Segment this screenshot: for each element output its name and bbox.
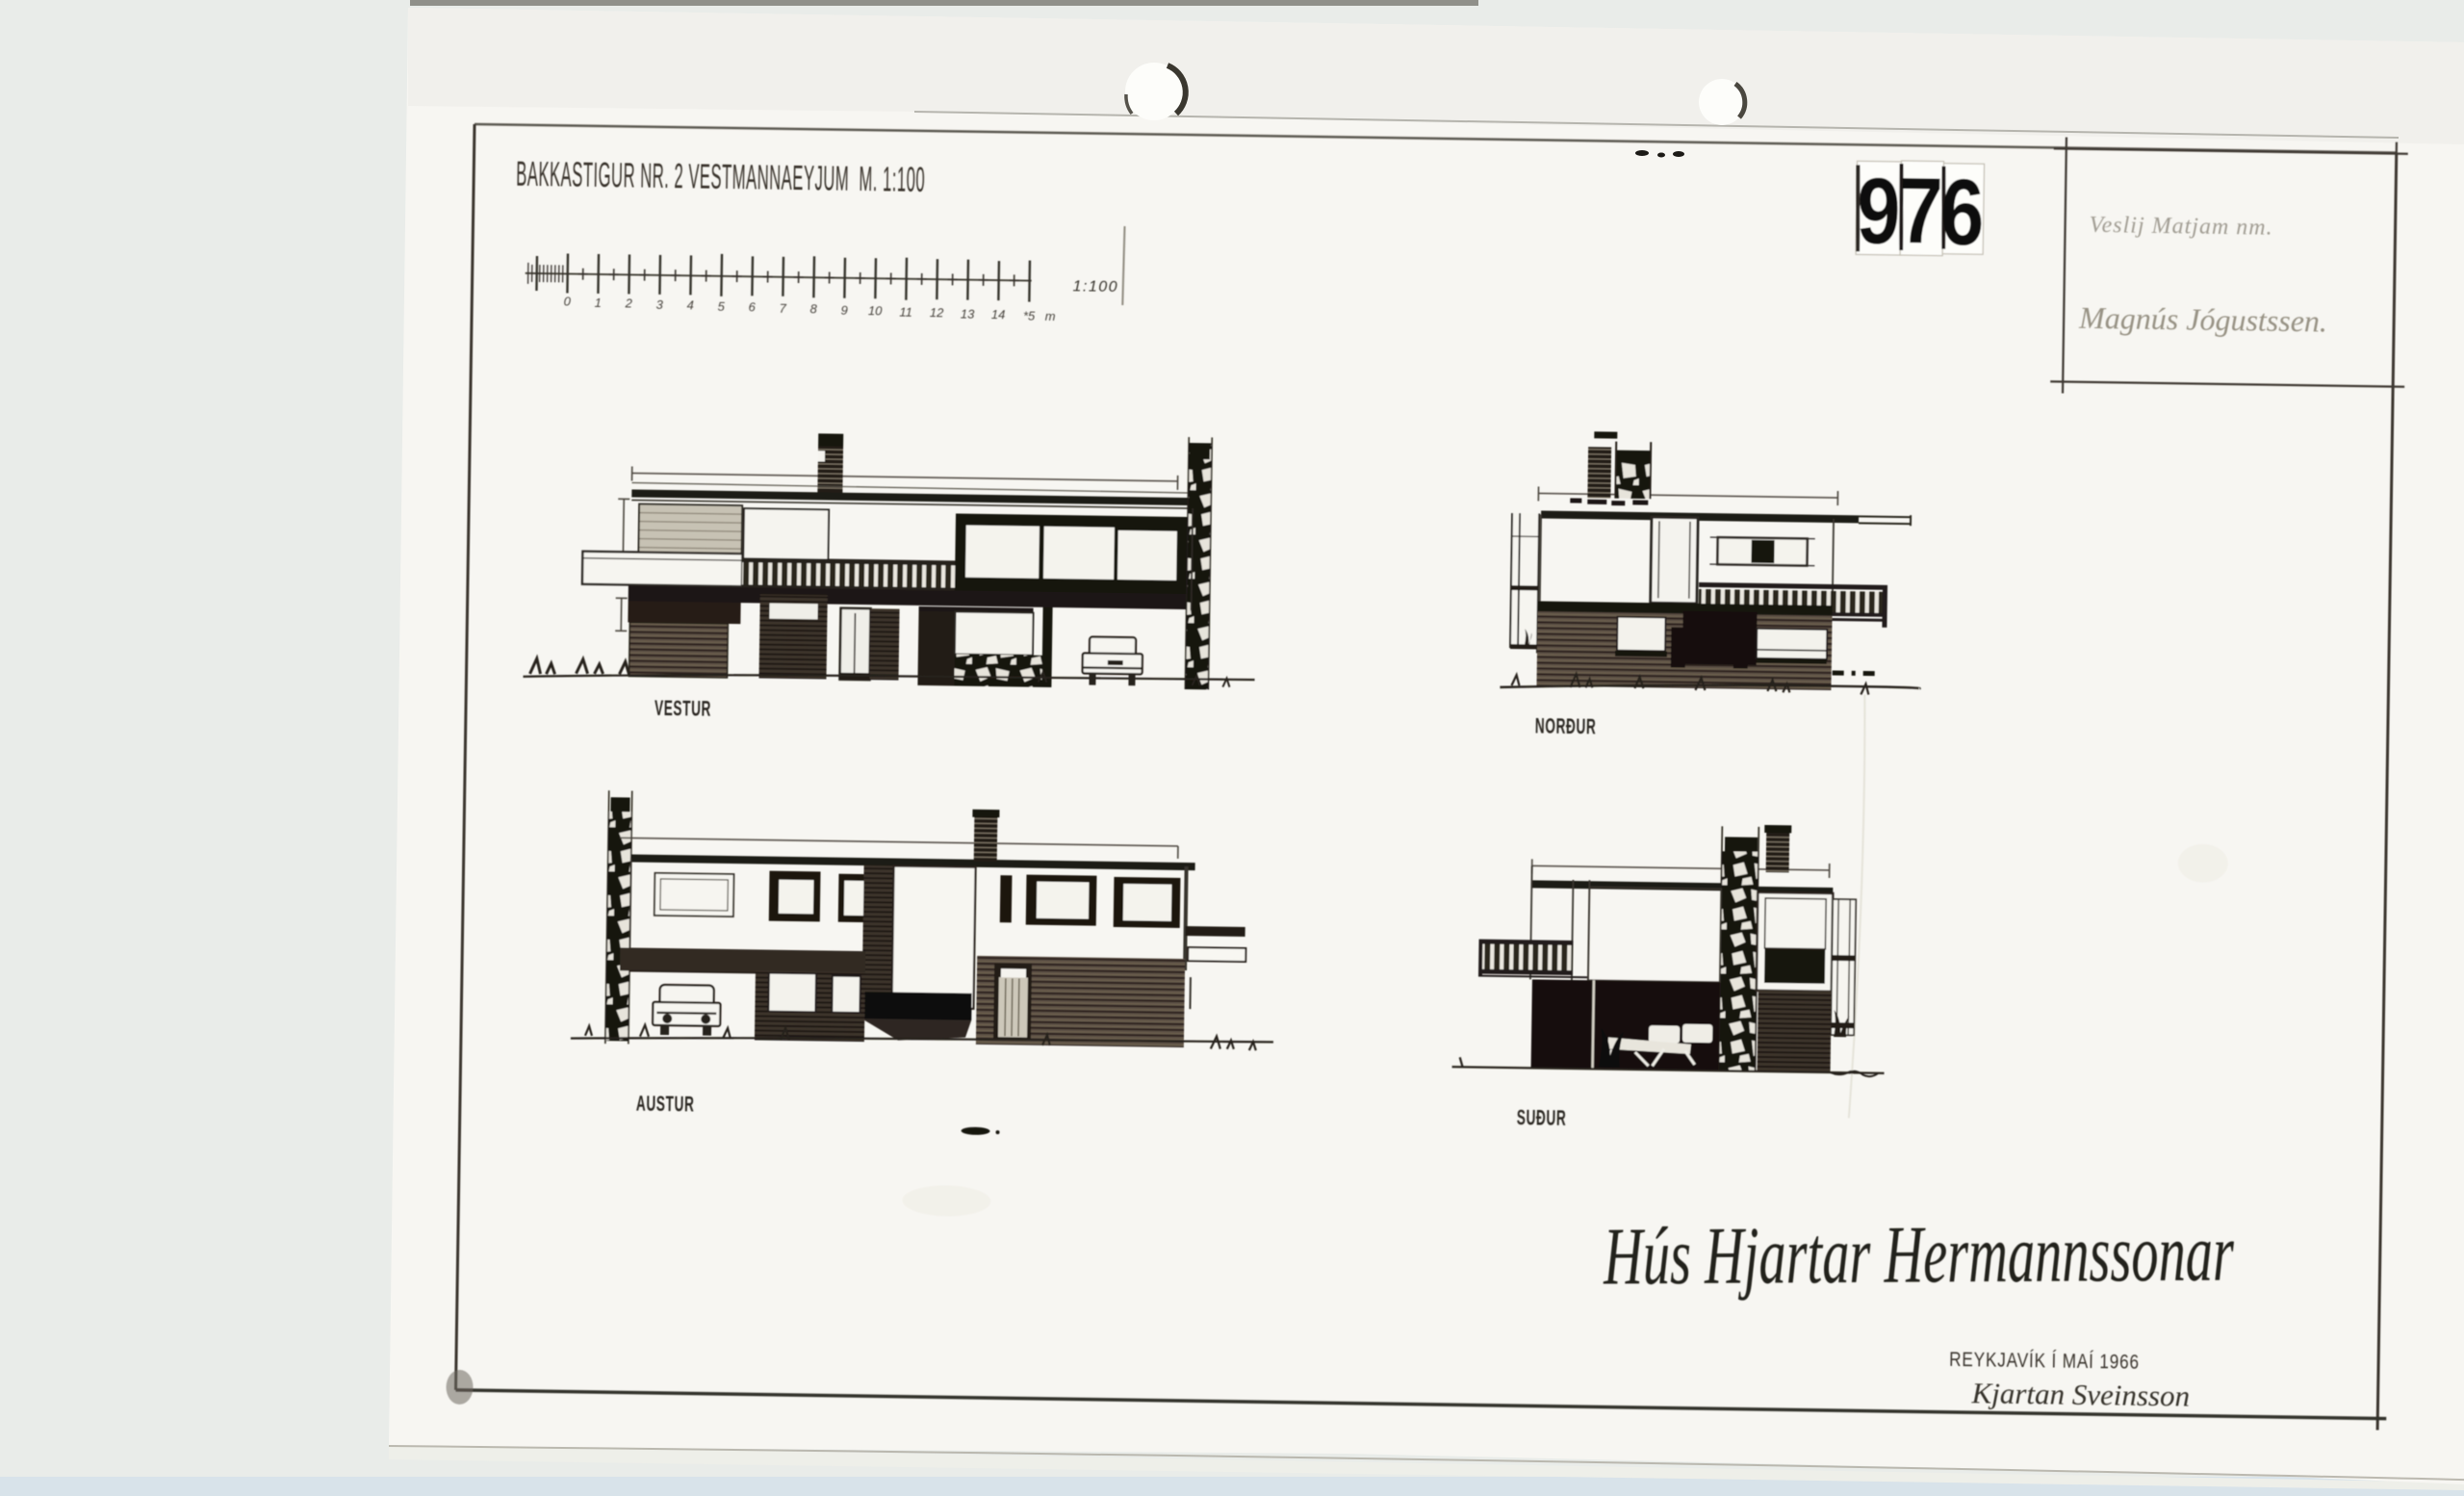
svg-text:13: 13	[961, 307, 975, 322]
svg-text:3: 3	[656, 297, 664, 312]
svg-text:NORÐUR: NORÐUR	[1535, 713, 1597, 738]
svg-text:Hús Hjartar Hermannssonar: Hús Hjartar Hermannssonar	[1603, 1207, 2235, 1302]
svg-text:6: 6	[748, 299, 756, 314]
svg-text:4: 4	[687, 297, 694, 312]
svg-text:10: 10	[868, 303, 883, 318]
svg-text:*5: *5	[1023, 308, 1036, 322]
svg-text:8: 8	[809, 301, 817, 316]
svg-text:1:100: 1:100	[1072, 278, 1118, 296]
svg-text:9: 9	[840, 303, 847, 318]
svg-text:m: m	[1045, 309, 1056, 323]
svg-text:14: 14	[991, 307, 1006, 322]
svg-text:REYKJAVÍK Í MAÍ 1966: REYKJAVÍK Í MAÍ 1966	[1949, 1349, 2140, 1374]
svg-text:7: 7	[1898, 158, 1943, 263]
svg-text:Magnús Jógustssen.: Magnús Jógustssen.	[2078, 300, 2327, 339]
svg-text:5: 5	[717, 299, 725, 314]
svg-text:7: 7	[779, 301, 786, 316]
svg-text:11: 11	[899, 305, 912, 320]
svg-text:Kjartan Sveinsson: Kjartan Sveinsson	[1970, 1376, 2190, 1412]
svg-text:Veslij Matjam nm.: Veslij Matjam nm.	[2089, 213, 2272, 241]
svg-text:1: 1	[595, 296, 602, 310]
svg-text:BAKKASTIGUR NR. 2 VESTMANNAEYJ: BAKKASTIGUR NR. 2 VESTMANNAEYJUM M. 1:10…	[516, 153, 926, 198]
svg-text:SUÐUR: SUÐUR	[1517, 1105, 1567, 1130]
svg-text:9: 9	[1856, 159, 1901, 264]
svg-text:12: 12	[930, 305, 944, 320]
svg-text:0: 0	[564, 294, 572, 308]
svg-text:6: 6	[1939, 160, 1985, 265]
svg-text:2: 2	[625, 296, 633, 310]
svg-text:AUSTUR: AUSTUR	[636, 1091, 695, 1116]
svg-text:VESTUR: VESTUR	[654, 695, 711, 720]
